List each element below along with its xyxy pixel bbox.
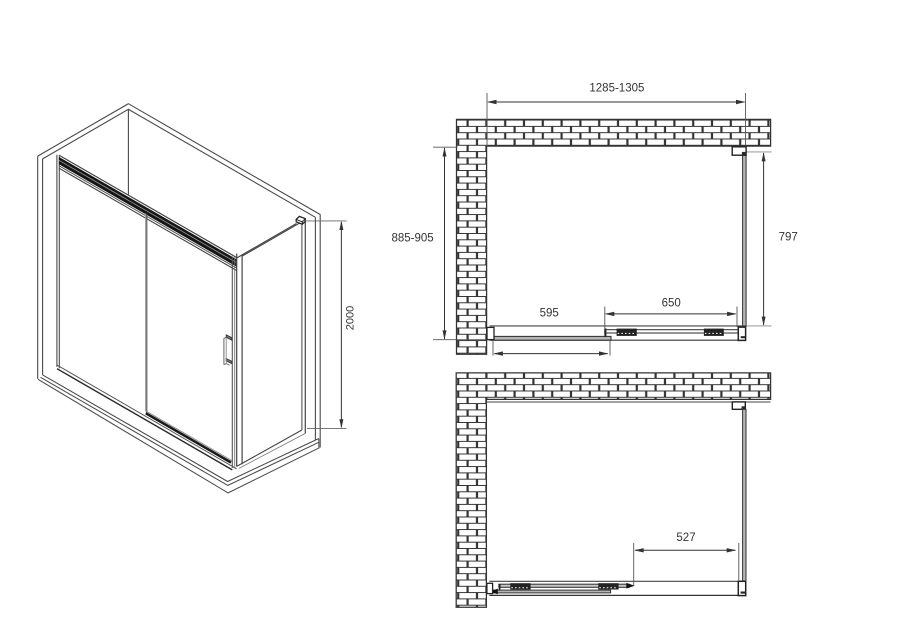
svg-text:797: 797 (779, 231, 798, 243)
svg-text:885-905: 885-905 (391, 233, 433, 245)
svg-text:650: 650 (662, 298, 681, 310)
svg-text:2000: 2000 (344, 306, 356, 330)
svg-text:595: 595 (540, 308, 559, 320)
svg-text:527: 527 (676, 532, 695, 544)
svg-text:1285-1305: 1285-1305 (589, 82, 644, 94)
